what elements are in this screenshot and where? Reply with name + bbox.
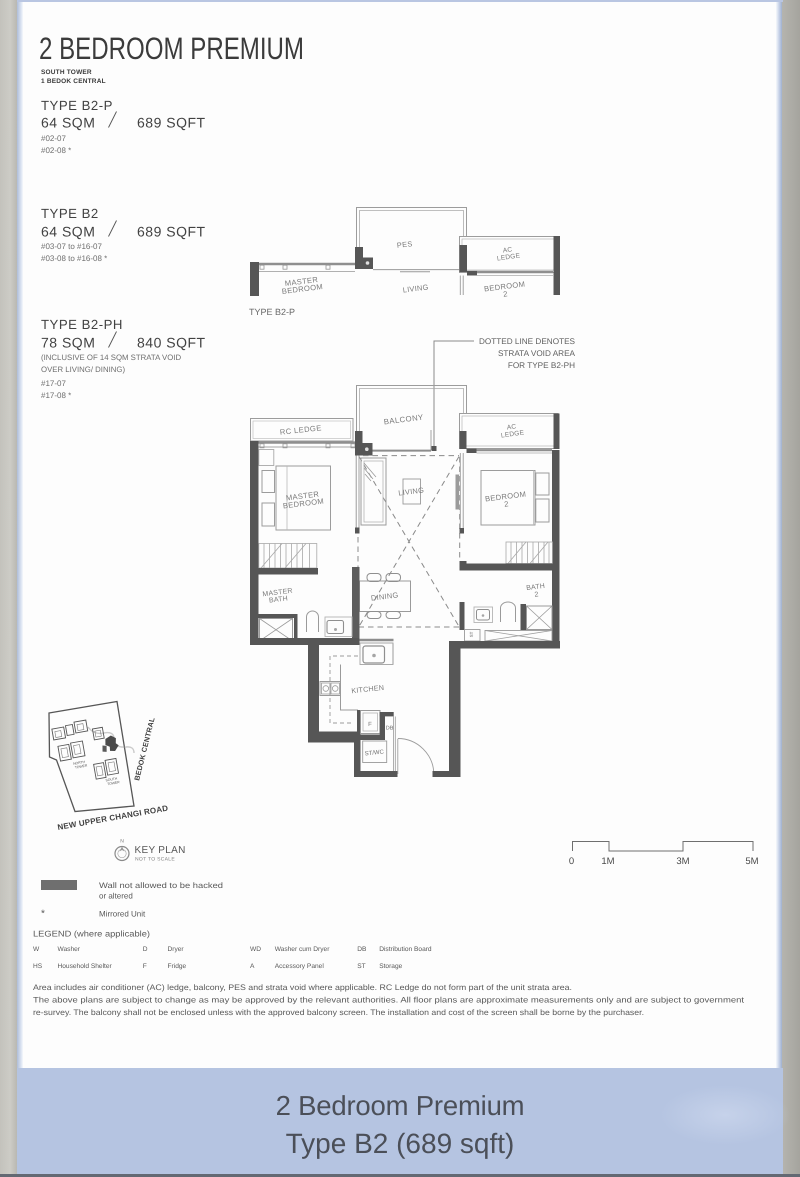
svg-text:689 SQFT: 689 SQFT [137, 115, 206, 131]
svg-text:#17-08 *: #17-08 * [41, 391, 71, 400]
svg-text:WD: WD [250, 946, 261, 953]
svg-text:78 SQM: 78 SQM [41, 335, 95, 351]
svg-text:TOWER: TOWER [107, 780, 121, 786]
svg-text:DINING: DINING [370, 590, 399, 602]
svg-text:ST/WC: ST/WC [364, 748, 385, 757]
svg-text:A: A [250, 963, 255, 970]
svg-text:N: N [120, 839, 124, 845]
svg-text:Washer cum Dryer: Washer cum Dryer [275, 946, 331, 953]
svg-text:LIVING: LIVING [402, 282, 429, 294]
svg-text:2 BEDROOM PREMIUM: 2 BEDROOM PREMIUM [39, 31, 304, 66]
svg-text:LEDGE: LEDGE [497, 252, 521, 262]
svg-text:1 BEDOK CENTRAL: 1 BEDOK CENTRAL [41, 78, 106, 85]
svg-text:TOWER: TOWER [75, 763, 89, 769]
svg-text:#03-08 to #16-08 *: #03-08 to #16-08 * [41, 254, 107, 263]
svg-text:or altered: or altered [99, 892, 133, 901]
svg-text:LEDGE: LEDGE [501, 429, 525, 439]
svg-text:Storage: Storage [379, 963, 402, 970]
svg-text:1M: 1M [601, 856, 614, 867]
svg-text:ST: ST [357, 963, 365, 970]
svg-text:TYPE B2-P: TYPE B2-P [41, 98, 113, 113]
svg-text:*: * [41, 909, 45, 920]
svg-text:F: F [368, 721, 372, 728]
svg-text:LEGEND (where applicable): LEGEND (where applicable) [33, 929, 150, 939]
svg-text:DB: DB [357, 946, 367, 953]
svg-text:DOTTED LINE DENOTES: DOTTED LINE DENOTES [479, 337, 576, 346]
svg-text:Washer: Washer [58, 946, 81, 953]
svg-text:HS: HS [33, 963, 43, 970]
svg-text:TYPE B2: TYPE B2 [41, 206, 99, 221]
svg-text:Dryer: Dryer [168, 946, 185, 953]
svg-text:W: W [33, 946, 40, 953]
svg-text:FOR TYPE B2-PH: FOR TYPE B2-PH [508, 361, 575, 370]
svg-text:TYPE B2-PH: TYPE B2-PH [41, 317, 123, 332]
svg-text:840 SQFT: 840 SQFT [137, 335, 206, 351]
svg-text:3M: 3M [676, 856, 689, 867]
svg-text:Area includes air conditioner: Area includes air conditioner (AC) ledge… [33, 983, 572, 992]
svg-text:DB: DB [386, 726, 394, 732]
svg-text:OVER LIVING/ DINING): OVER LIVING/ DINING) [41, 365, 125, 374]
svg-text:PES: PES [396, 239, 413, 250]
svg-text:STRATA VOID AREA: STRATA VOID AREA [498, 349, 576, 358]
svg-text:Mirrored Unit: Mirrored Unit [99, 910, 146, 919]
svg-text:64 SQM: 64 SQM [41, 224, 95, 240]
svg-text:64 SQM: 64 SQM [41, 115, 95, 131]
svg-text:BATH: BATH [269, 595, 289, 604]
svg-text:RC LEDGE: RC LEDGE [279, 423, 322, 436]
svg-text:#17-07: #17-07 [41, 379, 66, 388]
svg-text:0: 0 [569, 856, 574, 867]
svg-text:KEY PLAN: KEY PLAN [135, 845, 186, 856]
svg-text:689 SQFT: 689 SQFT [137, 224, 206, 240]
svg-text:D: D [143, 946, 148, 953]
svg-text:#02-08 *: #02-08 * [41, 146, 71, 155]
svg-text:#02-07: #02-07 [41, 134, 66, 143]
svg-text:BALCONY: BALCONY [383, 413, 424, 427]
svg-text:Fridge: Fridge [168, 963, 187, 970]
svg-text:Accessory Panel: Accessory Panel [275, 963, 325, 970]
svg-text:re-survey. The balcony shall n: re-survey. The balcony shall not be encl… [33, 1008, 644, 1017]
svg-text:2: 2 [534, 591, 539, 598]
svg-text:BEDOK CENTRAL: BEDOK CENTRAL [132, 716, 157, 782]
svg-text:5M: 5M [745, 856, 758, 867]
svg-text:ST: ST [469, 631, 474, 637]
svg-text:Distribution Board: Distribution Board [379, 946, 432, 953]
svg-text:TYPE B2-P: TYPE B2-P [249, 307, 295, 317]
svg-text:KITCHEN: KITCHEN [351, 683, 385, 695]
svg-text:Wall not allowed to be hacked: Wall not allowed to be hacked [99, 881, 223, 890]
svg-text:F: F [143, 963, 147, 970]
svg-text:NOT TO SCALE: NOT TO SCALE [135, 857, 175, 863]
svg-text:Household Shelter: Household Shelter [58, 963, 113, 970]
svg-text:SOUTH TOWER: SOUTH TOWER [41, 69, 92, 76]
svg-text:(INCLUSIVE OF 14 SQM STRATA VO: (INCLUSIVE OF 14 SQM STRATA VOID [41, 353, 181, 362]
svg-text:#03-07 to #16-07: #03-07 to #16-07 [41, 242, 102, 251]
svg-text:The above plans are subject to: The above plans are subject to change as… [33, 996, 745, 1005]
